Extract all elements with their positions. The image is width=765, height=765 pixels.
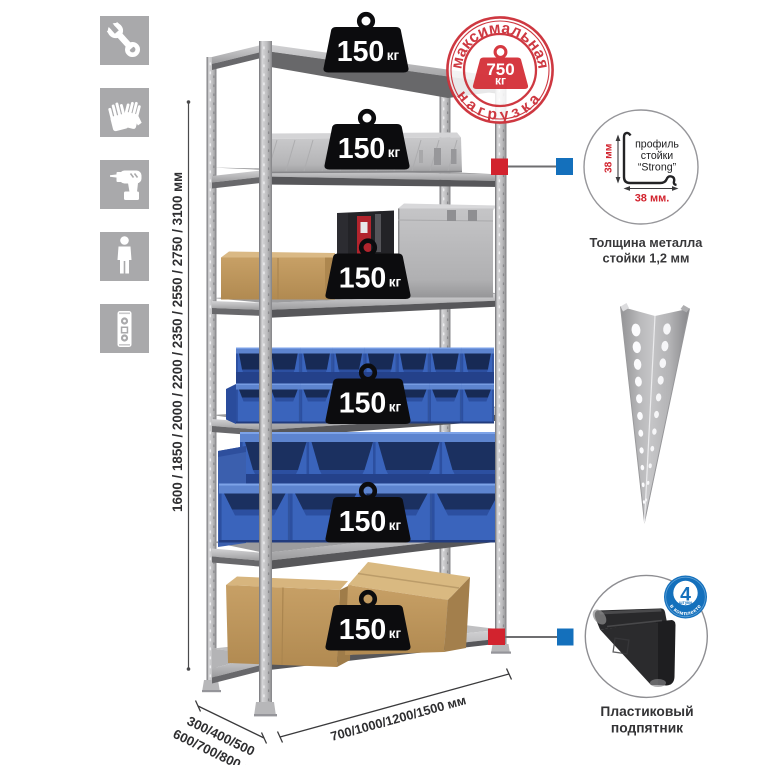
svg-text:150: 150 [337, 36, 385, 68]
svg-text:150: 150 [338, 133, 386, 165]
svg-text:кг: кг [389, 275, 402, 290]
svg-text:кг: кг [387, 48, 400, 63]
svg-text:150: 150 [339, 263, 387, 295]
svg-text:профиль: профиль [635, 139, 679, 151]
svg-text:кг: кг [388, 145, 401, 160]
svg-text:38 мм: 38 мм [604, 144, 615, 173]
svg-text:стойки: стойки [641, 150, 673, 162]
svg-text:подпятник: подпятник [611, 721, 683, 736]
svg-text:150: 150 [339, 614, 387, 646]
svg-text:кг: кг [389, 400, 402, 415]
svg-text:150: 150 [339, 506, 387, 538]
svg-text:“Strong”: “Strong” [638, 162, 677, 174]
svg-text:кг: кг [389, 518, 402, 533]
svg-text:кг: кг [495, 74, 506, 88]
svg-text:штуки: штуки [679, 600, 692, 605]
svg-text:стойки 1,2 мм: стойки 1,2 мм [602, 251, 689, 266]
svg-text:кг: кг [389, 626, 402, 641]
svg-text:1600 / 1850 / 2000 / 2200 / 23: 1600 / 1850 / 2000 / 2200 / 2350 / 2550 … [170, 172, 185, 512]
svg-text:150: 150 [339, 388, 387, 420]
svg-text:Толщина металла: Толщина металла [590, 235, 704, 250]
svg-text:38 мм.: 38 мм. [635, 193, 670, 205]
svg-text:Пластиковый: Пластиковый [600, 704, 693, 719]
